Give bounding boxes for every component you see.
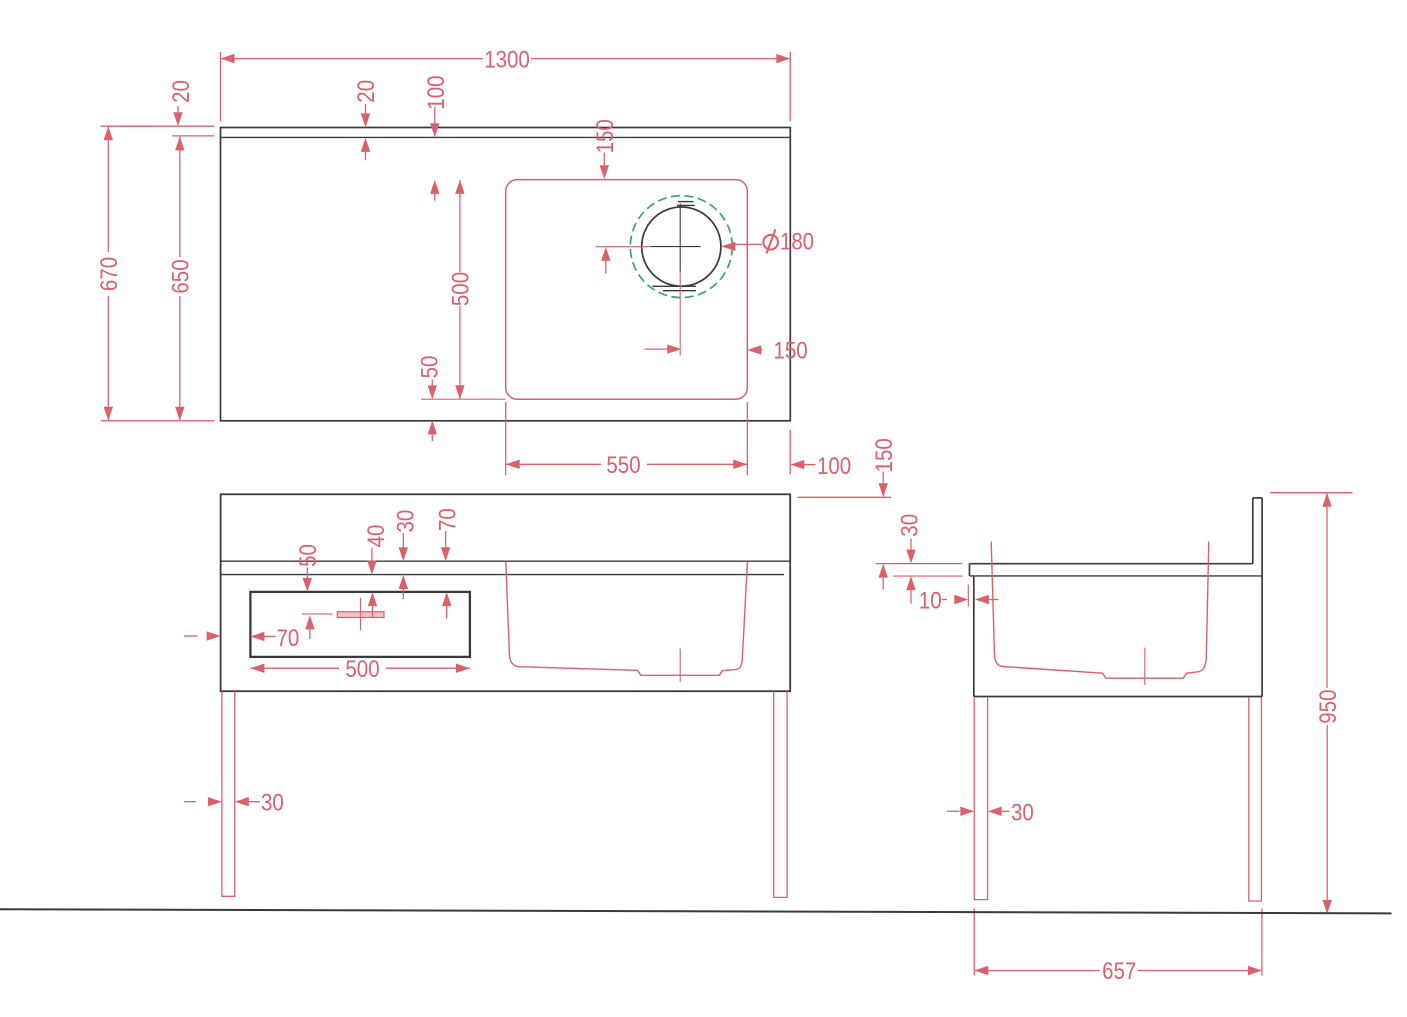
svg-text:950: 950 bbox=[1315, 690, 1342, 724]
svg-text:30: 30 bbox=[1011, 800, 1034, 827]
svg-text:150: 150 bbox=[774, 338, 808, 365]
svg-text:70: 70 bbox=[277, 625, 300, 652]
svg-text:50: 50 bbox=[295, 544, 322, 567]
svg-text:70: 70 bbox=[434, 508, 461, 531]
svg-text:670: 670 bbox=[96, 257, 123, 291]
svg-text:500: 500 bbox=[345, 656, 379, 683]
svg-text:657: 657 bbox=[1102, 958, 1136, 985]
svg-text:150: 150 bbox=[871, 438, 898, 472]
svg-text:100: 100 bbox=[817, 453, 851, 480]
svg-text:30: 30 bbox=[896, 514, 923, 537]
svg-text:180: 180 bbox=[780, 228, 814, 255]
svg-text:1300: 1300 bbox=[484, 46, 530, 73]
svg-text:30: 30 bbox=[261, 790, 284, 817]
svg-text:10: 10 bbox=[919, 588, 942, 615]
svg-text:30: 30 bbox=[393, 510, 420, 533]
svg-text:20: 20 bbox=[168, 80, 195, 103]
svg-text:650: 650 bbox=[168, 259, 195, 293]
svg-text:100: 100 bbox=[423, 76, 450, 110]
svg-text:50: 50 bbox=[417, 356, 444, 379]
svg-text:550: 550 bbox=[606, 452, 640, 479]
svg-text:40: 40 bbox=[363, 525, 390, 548]
svg-text:500: 500 bbox=[448, 272, 475, 306]
svg-text:150: 150 bbox=[592, 119, 619, 153]
svg-text:20: 20 bbox=[353, 80, 380, 103]
